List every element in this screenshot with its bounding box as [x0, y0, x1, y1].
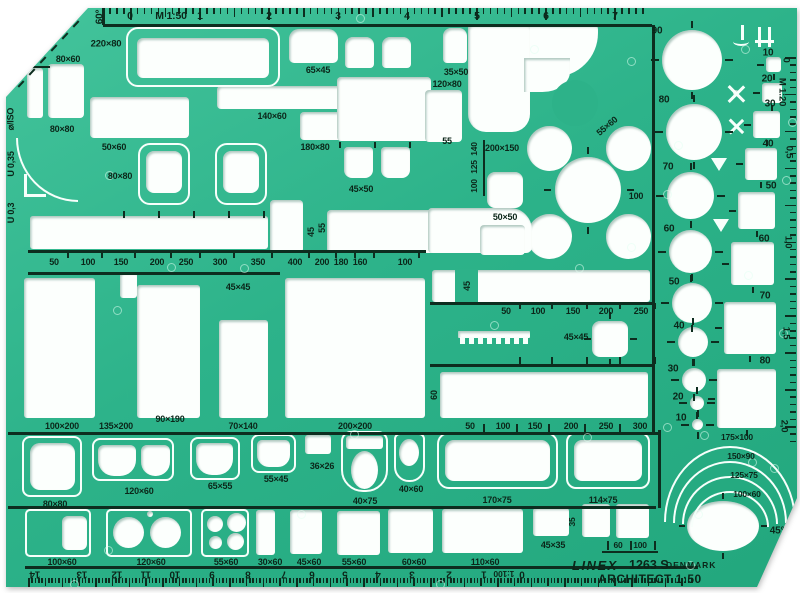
ink-line — [192, 8, 194, 14]
ink-line — [386, 578, 388, 583]
ink-line — [400, 578, 402, 583]
cutout-shape — [30, 216, 268, 249]
ink-line — [116, 8, 118, 14]
dim-label: 120×80 — [432, 79, 461, 89]
dim-label: 3 — [409, 569, 414, 580]
dim-label: 1:100 — [494, 569, 515, 579]
dim-label: 150 — [528, 421, 542, 431]
dim-label: 50 — [49, 257, 59, 267]
dim-label: 0 — [127, 10, 133, 22]
cutout-shape — [555, 157, 621, 223]
dim-label: 2,0 — [779, 420, 790, 433]
ink-line — [497, 578, 499, 589]
ink-line — [574, 578, 576, 583]
square-cutout — [753, 111, 780, 138]
ink-line — [333, 578, 335, 583]
ink-line — [108, 578, 110, 583]
dim-label: 6 — [309, 569, 314, 580]
cutout-shape — [533, 508, 569, 536]
ink-line — [88, 578, 90, 583]
mold-mark — [530, 45, 539, 54]
ink-line — [45, 578, 47, 586]
dim-label: 1 — [481, 569, 486, 580]
cutout-shape — [256, 510, 275, 555]
ink-line — [586, 357, 588, 364]
square-cutout — [766, 57, 781, 72]
ink-line — [790, 72, 796, 74]
ink-line — [222, 578, 224, 583]
cutout-shape — [344, 147, 373, 178]
ink-line — [483, 8, 485, 14]
dim-label: 7 — [281, 569, 286, 580]
ink-line — [654, 303, 656, 309]
mold-mark — [627, 57, 636, 66]
ink-line — [790, 323, 796, 325]
ink-line — [790, 256, 796, 258]
mold-mark — [350, 430, 359, 439]
ink-line — [790, 160, 796, 162]
dim-label: 125×75 — [730, 470, 757, 480]
ink-line — [790, 219, 796, 221]
ink-line — [67, 251, 69, 258]
ink-line — [8, 432, 658, 435]
ink-line — [642, 8, 644, 14]
dim-label: 40 — [674, 321, 685, 332]
ink-line — [216, 578, 218, 583]
ink-line — [26, 66, 50, 68]
ink-line — [219, 578, 221, 583]
dim-label: 100×60 — [47, 557, 76, 567]
ink-line — [790, 308, 796, 310]
ink-line — [581, 578, 583, 586]
dim-label: 50 — [669, 277, 680, 288]
ink-line — [420, 578, 422, 583]
dim-label: 140×60 — [257, 111, 286, 121]
cutout-shape — [381, 147, 410, 178]
ink-line — [227, 8, 229, 14]
ink-line — [587, 578, 589, 583]
ink-line — [152, 578, 154, 583]
dim-label: 40 — [763, 139, 774, 150]
dim-label: 200 — [315, 257, 329, 267]
ink-line — [790, 382, 796, 384]
ink-line — [752, 287, 754, 293]
ink-line — [722, 493, 724, 499]
cutout-shape — [480, 225, 525, 255]
dim-label: 50 — [501, 306, 511, 316]
ink-line — [753, 92, 760, 94]
ink-line — [785, 352, 796, 354]
ink-line — [655, 131, 663, 133]
ink-line — [587, 227, 589, 234]
ink-line — [409, 142, 411, 148]
mold-mark — [627, 243, 636, 252]
dim-label: 6 — [543, 10, 549, 22]
mold-mark — [490, 321, 499, 330]
cutout-shape — [527, 126, 572, 171]
ink-line — [551, 303, 553, 309]
mold-mark — [674, 141, 683, 150]
ink-line — [559, 8, 561, 14]
ink-line — [319, 578, 321, 583]
dim-label: 100 — [629, 191, 643, 201]
ink-line — [339, 142, 341, 148]
ink-line — [92, 578, 94, 583]
ink-line — [790, 138, 796, 140]
ink-line — [353, 578, 355, 583]
dim-label: 10 — [763, 48, 774, 59]
white-detail-line — [505, 337, 510, 344]
ink-line — [790, 271, 796, 273]
country-label: DENMARK — [666, 560, 716, 570]
ink-line — [587, 147, 589, 154]
dim-label: U 0,35 — [6, 151, 16, 176]
ink-line — [591, 578, 593, 583]
dim-label: 90 — [652, 26, 663, 37]
ink-line — [601, 8, 603, 14]
ink-line — [263, 578, 265, 589]
ink-line — [715, 327, 722, 329]
circle-cutout — [666, 104, 722, 160]
ink-line — [418, 251, 420, 258]
mold-mark — [663, 190, 672, 199]
white-detail-line — [478, 337, 483, 344]
ink-line — [490, 8, 492, 14]
outline-cutout — [251, 434, 296, 473]
dim-label: 45 — [462, 281, 472, 291]
dim-label: 150×90 — [727, 451, 754, 461]
cutout-shape — [327, 210, 437, 253]
dim-label: 36×26 — [310, 461, 334, 471]
ink-line — [561, 578, 563, 583]
dim-label: M 1:50 — [155, 10, 186, 22]
dim-label: 100×200 — [45, 421, 79, 431]
ink-line — [790, 197, 796, 199]
mold-mark — [788, 118, 797, 127]
ink-line — [524, 8, 526, 14]
ink-line — [609, 359, 611, 366]
cutout-shape — [305, 435, 331, 454]
ink-line — [628, 8, 630, 14]
ink-line — [467, 578, 469, 583]
ink-line — [345, 8, 347, 14]
ink-line — [403, 578, 405, 583]
ink-line — [196, 578, 198, 589]
ink-line — [607, 541, 609, 550]
ink-line — [790, 396, 796, 398]
outline-cutout — [190, 437, 240, 480]
ink-line — [151, 8, 153, 14]
brand-name: LINEX — [572, 558, 618, 573]
ink-line — [621, 8, 623, 14]
cutout-shape — [592, 321, 628, 357]
ink-line — [790, 64, 796, 66]
dim-label: 170×75 — [482, 495, 511, 505]
ink-line — [785, 278, 796, 280]
ink-line — [653, 424, 655, 432]
dim-label: 400 — [288, 257, 302, 267]
ink-line — [594, 578, 596, 583]
ink-line — [519, 357, 521, 364]
white-detail-line — [460, 337, 465, 344]
ink-line — [729, 210, 736, 212]
cutout-shape — [606, 214, 651, 259]
drafting-template: 0M 1:50123456760°30°220×8080×6080×8050×6… — [0, 0, 800, 593]
ink-line — [619, 357, 621, 364]
dim-label: 65×45 — [306, 65, 330, 75]
ink-line — [693, 394, 695, 401]
ink-line — [785, 131, 796, 133]
ink-line — [336, 578, 338, 583]
ink-line — [652, 25, 655, 432]
ink-line — [299, 578, 301, 583]
mold-mark — [782, 176, 791, 185]
dim-label: 200 — [599, 306, 613, 316]
dim-label: 4 — [375, 569, 380, 580]
green-patch — [552, 80, 598, 126]
ink-line — [715, 251, 723, 253]
square-cutout — [738, 192, 775, 229]
ink-line — [462, 8, 464, 14]
cutout-shape — [468, 25, 530, 132]
outline-cutout — [22, 436, 82, 497]
dim-label: 0 — [519, 569, 524, 580]
dim-label: 55×60 — [214, 557, 238, 567]
dim-label: 80×80 — [43, 499, 67, 509]
mold-mark — [583, 433, 592, 442]
mold-mark — [575, 264, 584, 273]
dim-label: 160 — [353, 257, 367, 267]
dim-label: 90×190 — [155, 414, 184, 424]
ink-line — [434, 8, 436, 14]
cutout-shape — [382, 37, 411, 68]
ink-line — [715, 302, 723, 304]
ink-line — [544, 189, 551, 191]
ink-line — [48, 578, 50, 583]
ink-line — [192, 578, 194, 583]
dim-label: 60 — [759, 234, 770, 245]
model-number: 1263 S — [629, 558, 669, 572]
ink-line — [584, 424, 586, 432]
square-cutout — [724, 302, 776, 354]
ink-line — [790, 419, 796, 421]
outline-cutout — [437, 432, 558, 489]
ink-line — [552, 8, 554, 14]
circle-cutout — [669, 230, 712, 273]
ink-line — [531, 578, 533, 589]
ink-line — [790, 101, 796, 103]
ink-line — [73, 20, 80, 27]
dim-label: 80×80 — [108, 171, 132, 181]
ink-line — [340, 578, 342, 583]
ink-line — [123, 211, 125, 218]
ink-line — [744, 124, 751, 126]
dim-label: 50×50 — [493, 212, 517, 222]
ink-line — [263, 211, 265, 218]
ink-line — [790, 175, 796, 177]
ink-line — [691, 274, 693, 281]
mold-mark — [104, 546, 113, 555]
dim-label: 1 — [197, 10, 203, 22]
ink-line — [474, 578, 476, 583]
ink-line — [551, 578, 553, 583]
ink-line — [441, 8, 443, 17]
ink-line — [690, 163, 692, 170]
mold-mark — [240, 264, 249, 273]
ink-line — [193, 211, 195, 218]
dim-label: 60 — [664, 224, 675, 235]
white-detail-line — [758, 27, 761, 40]
ink-line — [654, 541, 656, 550]
cutout-shape — [443, 28, 467, 63]
ink-line — [397, 578, 399, 589]
ink-line — [226, 578, 228, 583]
ink-line — [271, 251, 273, 258]
white-detail-line — [24, 174, 27, 196]
ink-line — [671, 379, 679, 381]
ink-line — [708, 398, 715, 400]
ink-line — [144, 8, 146, 14]
ink-line — [691, 21, 693, 28]
dim-label: 300 — [213, 257, 227, 267]
ink-line — [293, 578, 295, 583]
ink-line — [790, 404, 796, 406]
outline-cutout — [394, 433, 425, 482]
ink-line — [259, 578, 261, 583]
ink-line — [547, 578, 549, 586]
ink-line — [430, 364, 652, 367]
ink-line — [182, 578, 184, 583]
ink-line — [393, 8, 395, 14]
dim-label: 0 — [781, 57, 792, 62]
ink-line — [790, 264, 796, 266]
dim-label: 100 — [81, 257, 95, 267]
ink-line — [514, 578, 516, 586]
ink-line — [28, 578, 30, 589]
ink-line — [407, 578, 409, 583]
ink-line — [370, 578, 372, 583]
ink-line — [511, 8, 513, 17]
dim-label: 70 — [663, 162, 674, 173]
dim-label: 55 — [317, 223, 327, 233]
cutout-shape — [442, 509, 523, 553]
ink-line — [654, 357, 656, 364]
ink-line — [706, 424, 714, 426]
ink-line — [139, 578, 141, 583]
triangle-cutout — [711, 158, 727, 171]
outline-cutout — [126, 27, 280, 87]
ink-line — [51, 578, 53, 583]
mold-mark — [436, 580, 445, 589]
ink-line — [586, 303, 588, 309]
ink-line — [326, 578, 328, 583]
dim-label: 200×150 — [485, 143, 519, 153]
dim-label: 4 — [404, 10, 410, 22]
dim-label: 9 — [209, 569, 214, 580]
dim-label: 10 — [170, 569, 181, 580]
white-detail-line — [514, 337, 519, 344]
mold-mark — [297, 510, 306, 519]
cutout-shape — [48, 64, 84, 118]
ink-line — [202, 578, 204, 583]
dim-label: 200 — [150, 257, 164, 267]
template-shadow-wrap: 0M 1:50123456760°30°220×8080×6080×8050×6… — [0, 0, 800, 593]
ink-line — [323, 578, 325, 583]
ink-line — [374, 142, 376, 148]
ink-line — [373, 578, 375, 583]
dim-label: 100 — [531, 306, 545, 316]
ink-line — [448, 8, 450, 14]
mold-mark — [741, 45, 750, 54]
dim-label: 30° — [29, 51, 45, 63]
ink-line — [566, 8, 568, 14]
ink-line — [427, 578, 429, 583]
ink-line — [386, 8, 388, 14]
ink-line — [275, 8, 277, 14]
dim-label: 35×50 — [444, 67, 468, 77]
dim-label: 135×200 — [99, 421, 133, 431]
ink-line — [567, 578, 569, 583]
ink-line — [691, 325, 693, 332]
ink-line — [527, 578, 529, 583]
dim-label: 20 — [673, 392, 684, 403]
dim-label: 180 — [334, 257, 348, 267]
ink-line — [266, 578, 268, 583]
ink-line — [366, 578, 368, 583]
ink-line — [696, 387, 698, 394]
ink-line — [679, 525, 685, 527]
cutout-shape — [425, 90, 462, 142]
dim-label: 60 — [429, 390, 439, 400]
ink-line — [790, 411, 796, 413]
mold-mark — [694, 510, 703, 519]
ink-line — [296, 578, 298, 589]
outline-cutout — [25, 509, 91, 557]
ink-line — [102, 578, 104, 583]
ink-line — [58, 578, 60, 583]
ink-line — [717, 195, 725, 197]
dim-label: 45×45 — [226, 282, 250, 292]
ink-line — [165, 578, 167, 583]
cutout-shape — [616, 504, 649, 538]
ink-line — [504, 8, 506, 14]
dim-label: 30 — [668, 364, 679, 375]
dim-label: 45 — [306, 227, 316, 237]
ink-line — [155, 578, 157, 583]
ink-line — [470, 578, 472, 583]
dim-label: 14 — [30, 569, 41, 580]
ink-line — [516, 424, 518, 432]
ink-line — [619, 424, 621, 432]
ink-line — [785, 389, 796, 391]
white-detail-line — [487, 337, 492, 344]
ink-line — [693, 95, 695, 102]
dim-label: 5 — [474, 10, 480, 22]
ink-line — [790, 433, 796, 435]
ink-line — [282, 8, 284, 14]
ink-line — [236, 578, 238, 583]
ink-line — [690, 221, 692, 228]
ink-line — [430, 578, 432, 589]
ink-line — [158, 211, 160, 218]
ink-line — [790, 109, 796, 111]
outline-cutout — [92, 438, 174, 481]
cutout-shape — [345, 37, 374, 68]
ink-line — [55, 578, 57, 583]
mold-mark — [770, 464, 779, 473]
ink-line — [316, 578, 318, 583]
cutout-shape — [90, 97, 189, 138]
